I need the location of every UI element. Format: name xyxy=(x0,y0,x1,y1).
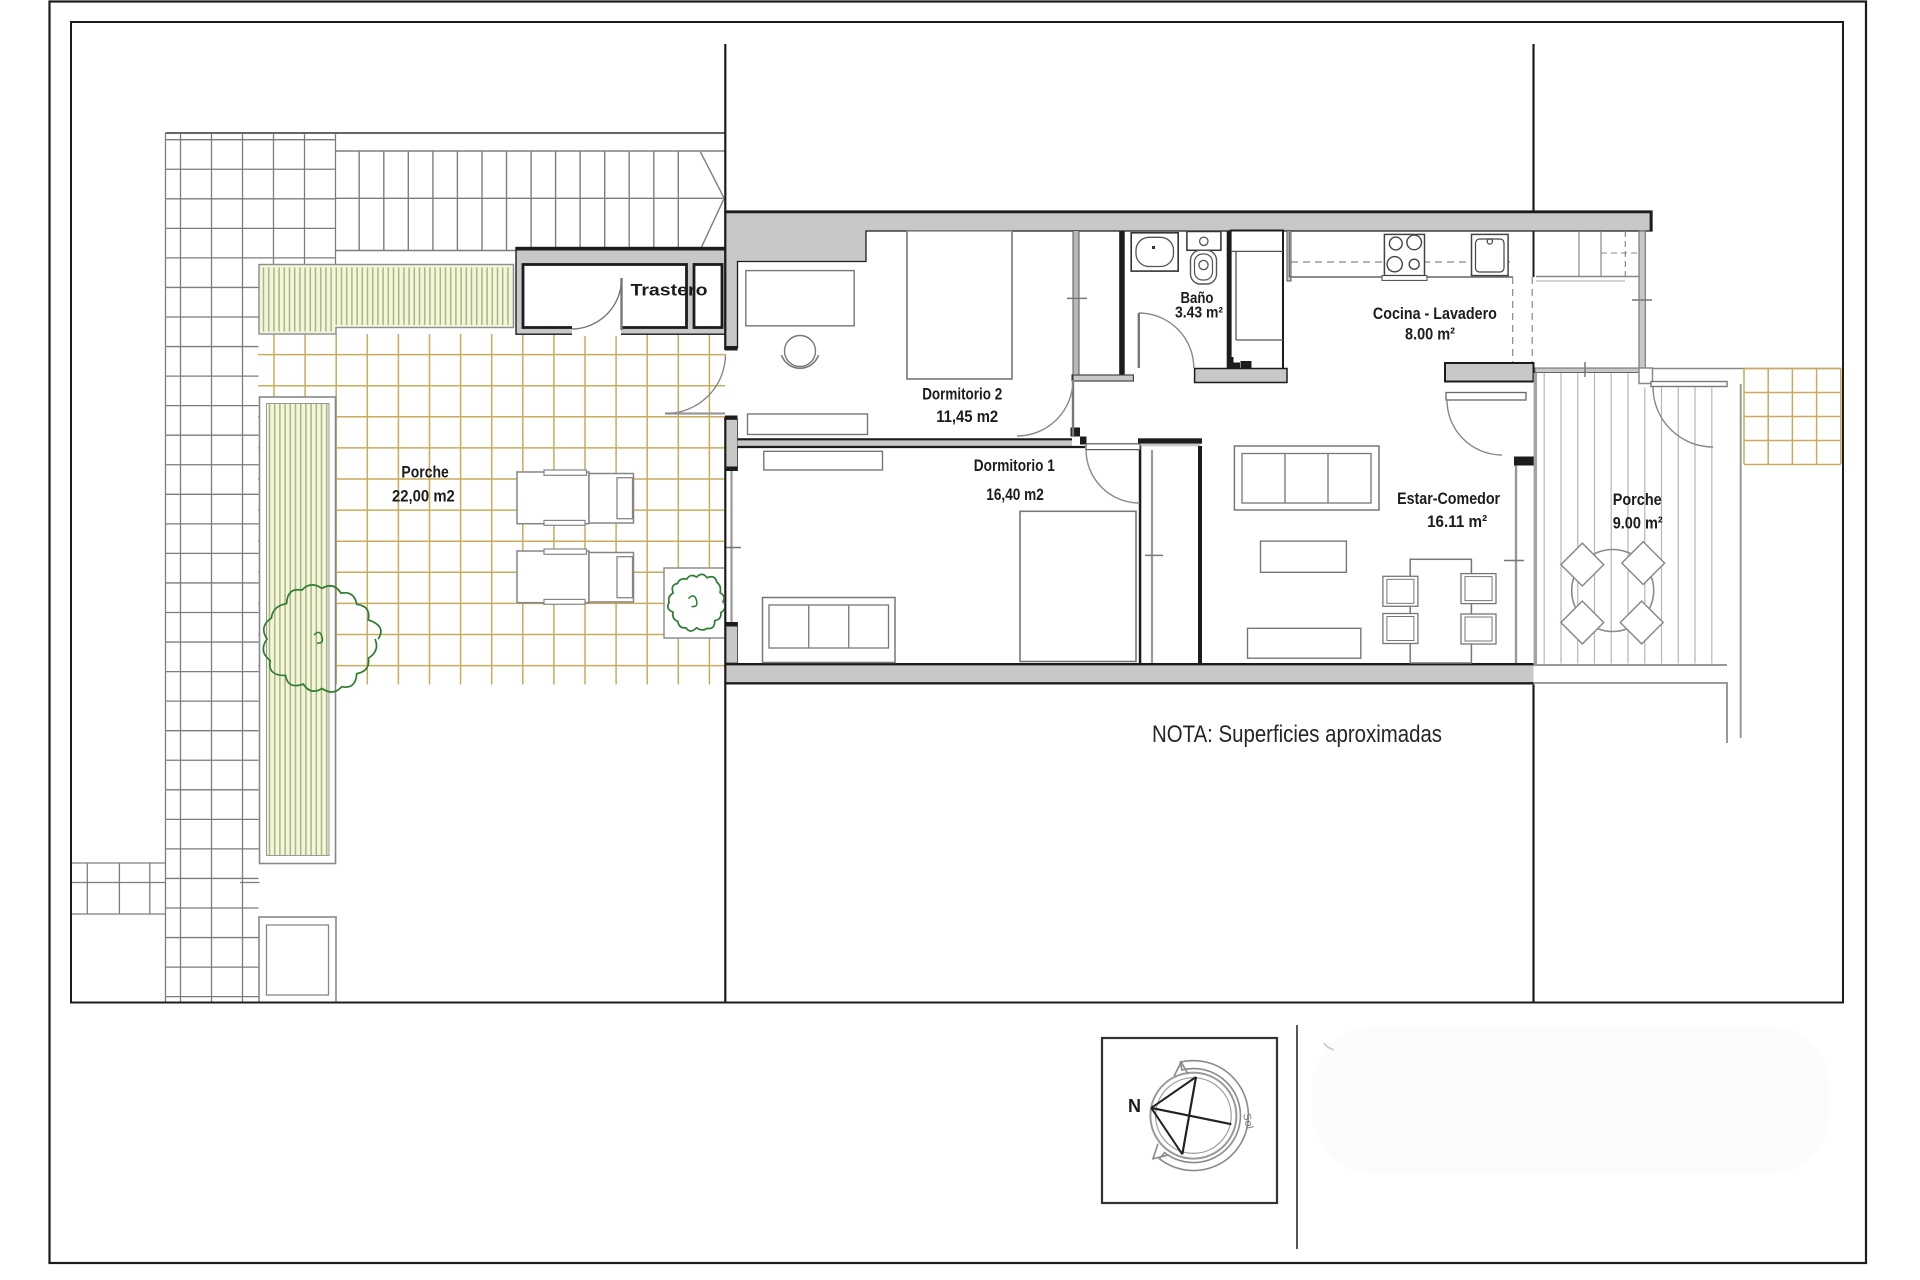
svg-text:Dormitorio 1: Dormitorio 1 xyxy=(974,457,1055,475)
svg-text:Estar-Comedor: Estar-Comedor xyxy=(1397,490,1500,508)
svg-text:16,40 m2: 16,40 m2 xyxy=(986,486,1044,504)
svg-text:11,45 m2: 11,45 m2 xyxy=(936,408,998,426)
svg-text:Porche: Porche xyxy=(401,464,448,482)
svg-text:Dormitorio 2: Dormitorio 2 xyxy=(922,386,1002,404)
svg-text:NOTA: Superficies aproximadas: NOTA: Superficies aproximadas xyxy=(1152,721,1442,748)
svg-text:Trastero: Trastero xyxy=(631,282,708,300)
svg-text:9.00 m²: 9.00 m² xyxy=(1613,515,1663,533)
svg-text:3.43 m²: 3.43 m² xyxy=(1175,305,1223,322)
svg-text:8.00 m²: 8.00 m² xyxy=(1405,326,1455,344)
svg-text:16.11 m²: 16.11 m² xyxy=(1427,513,1487,531)
svg-text:N: N xyxy=(1128,1096,1141,1116)
svg-text:22,00 m2: 22,00 m2 xyxy=(392,488,455,506)
svg-text:Porche: Porche xyxy=(1613,491,1662,509)
svg-text:Cocina - Lavadero: Cocina - Lavadero xyxy=(1373,305,1497,323)
